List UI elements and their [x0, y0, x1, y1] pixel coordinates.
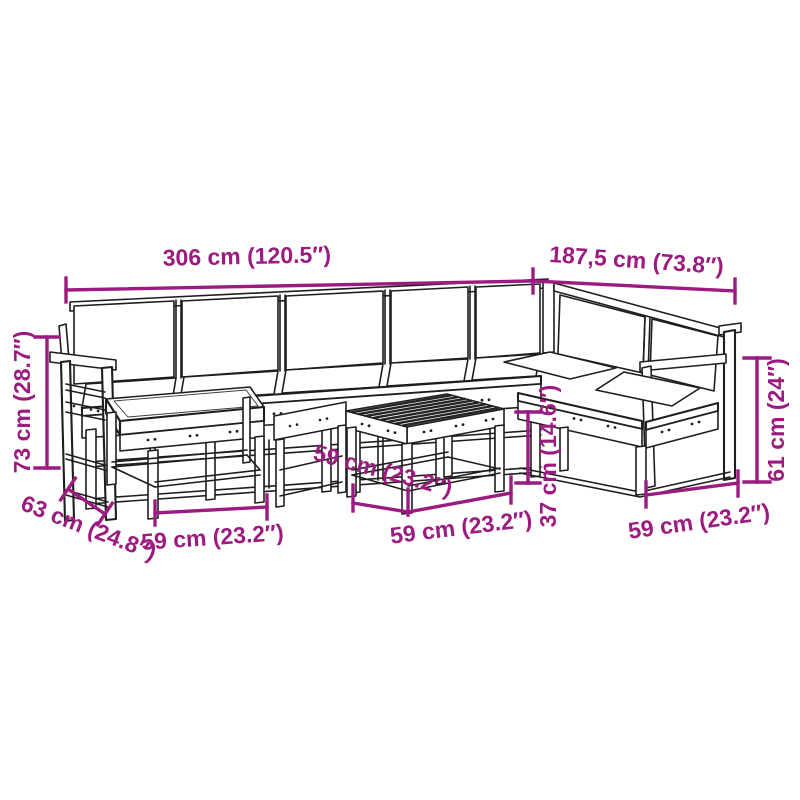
product-dimension-image: 306 cm (120.5″) 187,5 cm (73.8″) 73 cm (… — [0, 0, 800, 800]
dimension-label: 59 cm (23.2″) — [626, 498, 771, 544]
dim-left-stool-width: 59 cm (23.2″) — [140, 495, 284, 555]
dimension-label: 306 cm (120.5″) — [162, 241, 331, 271]
dimension-label: 187,5 cm (73.8″) — [549, 241, 725, 279]
dimension-label: 73 cm (28.7″) — [9, 331, 35, 474]
dim-arm-height: 61 cm (24″) — [744, 358, 789, 482]
dimension-label: 61 cm (24″) — [763, 358, 789, 482]
dimension-label: 37 cm (14.6″) — [535, 385, 561, 528]
ottoman-line-art — [106, 387, 264, 519]
ottoman-base-frame — [112, 450, 260, 487]
dimension-diagram-canvas: 306 cm (120.5″) 187,5 cm (73.8″) 73 cm (… — [0, 0, 800, 800]
dimension-label: 59 cm (23.2″) — [140, 519, 284, 555]
corner-post — [543, 281, 554, 353]
